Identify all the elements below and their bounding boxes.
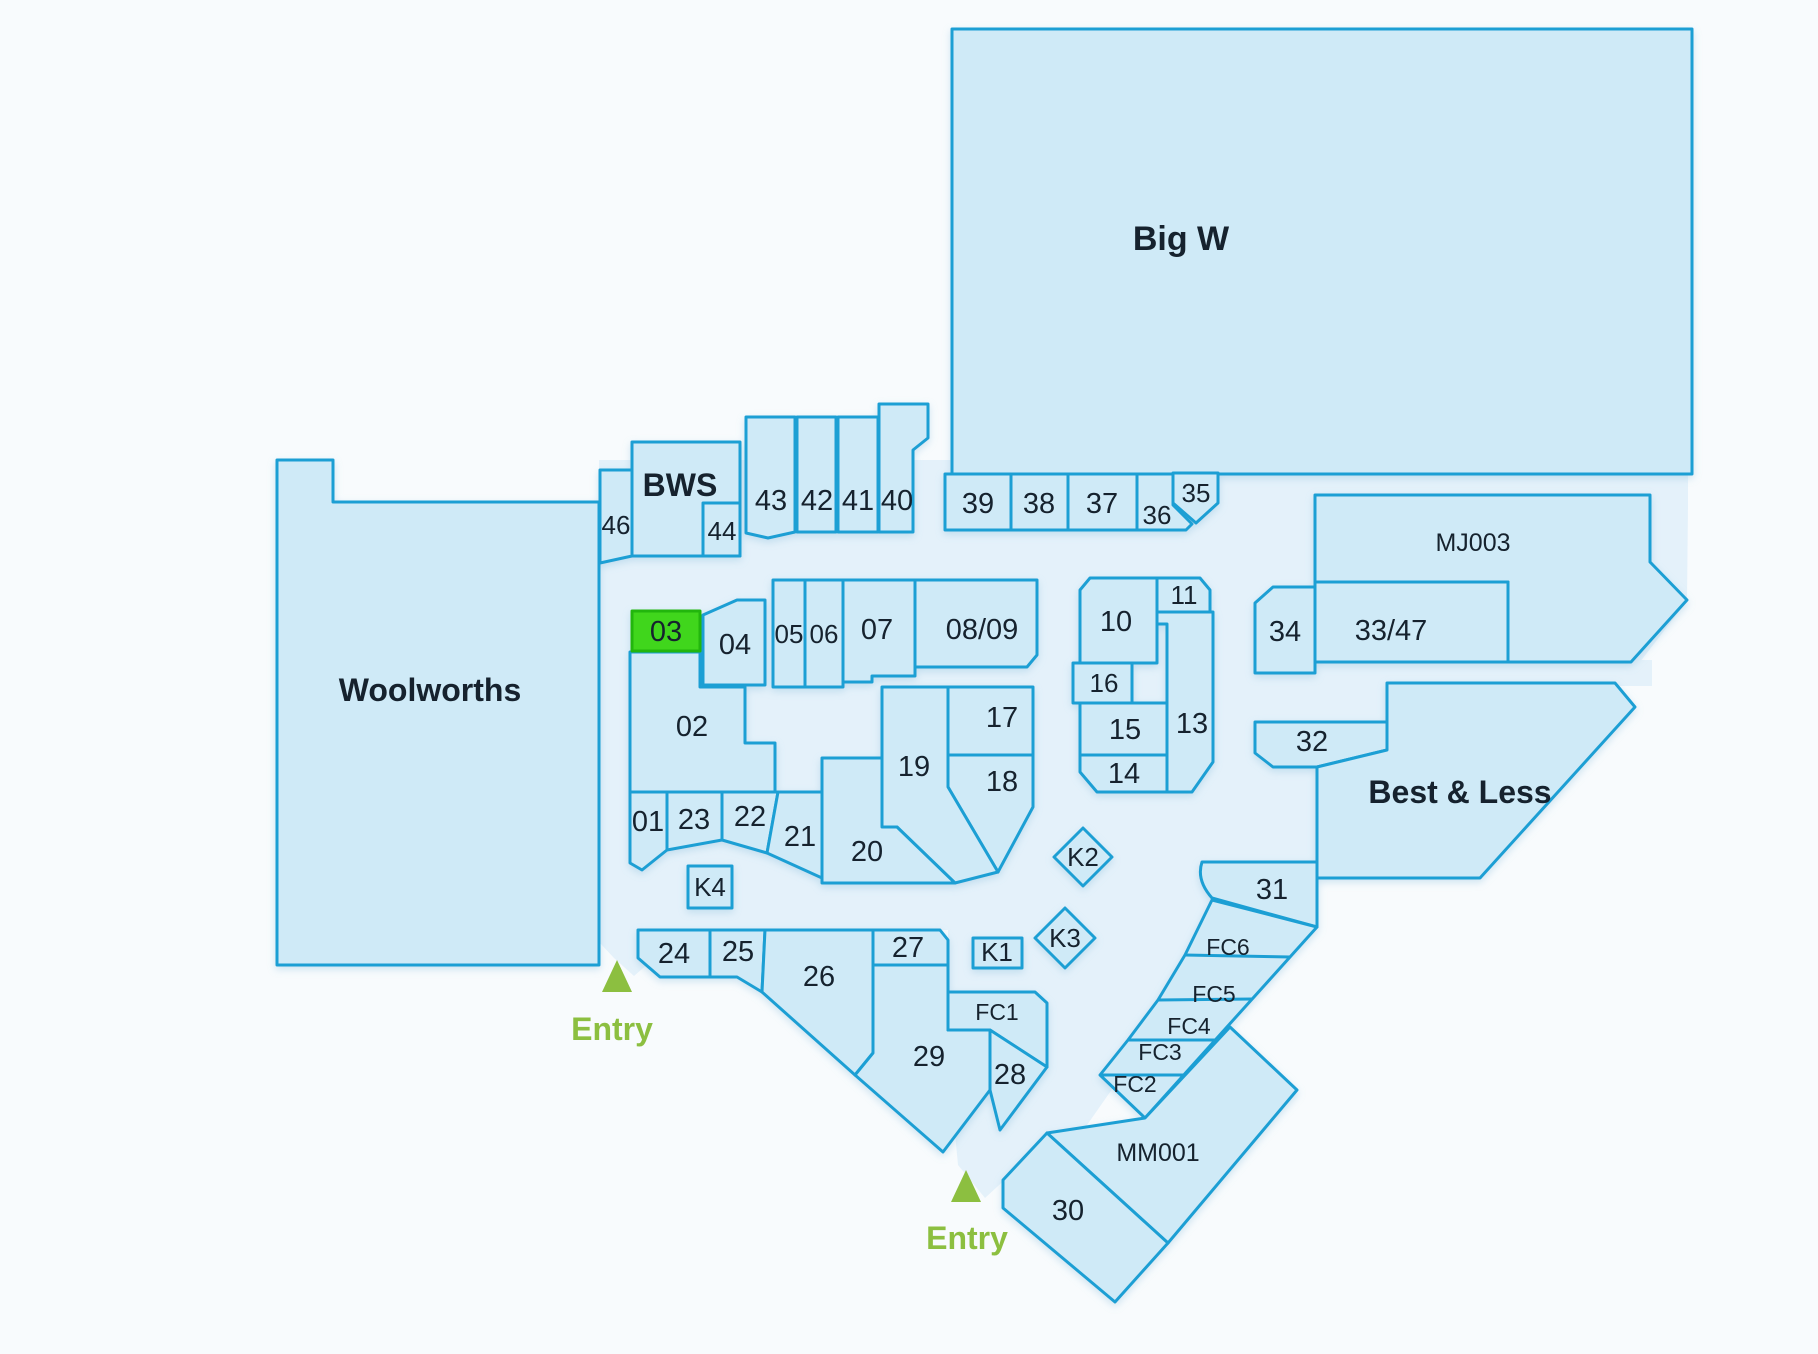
kiosk-k1-label: K1 (981, 937, 1013, 967)
shop-44-label: 44 (708, 516, 737, 546)
shop-28-label: 28 (994, 1059, 1026, 1091)
shop-20-label: 20 (851, 836, 883, 868)
shop-27-label: 27 (892, 932, 924, 964)
store-mm001-label: MM001 (1116, 1139, 1199, 1167)
store-woolworths-label: Woolworths (339, 672, 522, 708)
shop-19-label: 19 (898, 751, 930, 783)
shop-08-09-label: 08/09 (946, 614, 1019, 646)
shop-46-label: 46 (602, 510, 631, 540)
shop-33-47[interactable]: 33/47 (1315, 582, 1508, 662)
shop-39-label: 39 (962, 488, 994, 520)
foodcourt-fc1-label: FC1 (975, 999, 1018, 1025)
shop-04[interactable]: 04 (703, 600, 765, 685)
shop-34[interactable]: 34 (1255, 587, 1315, 673)
shop-37[interactable]: 37 (1068, 474, 1137, 530)
shop-27[interactable]: 27 (873, 930, 948, 965)
shop-23[interactable]: 23 (667, 792, 722, 850)
shop-26-label: 26 (803, 961, 835, 993)
shop-35-label: 35 (1182, 478, 1211, 508)
foodcourt-fc5-label: FC5 (1192, 981, 1235, 1007)
shop-22-label: 22 (734, 801, 766, 833)
shop-43-label: 43 (755, 485, 787, 517)
shop-10-label: 10 (1100, 606, 1132, 638)
shop-03-label: 03 (650, 616, 682, 648)
shop-01-label: 01 (632, 806, 664, 838)
shop-03-highlighted[interactable]: 03 (632, 611, 700, 651)
store-woolworths[interactable]: Woolworths (277, 460, 599, 965)
shop-41-label: 41 (842, 485, 874, 517)
shop-15[interactable]: 15 (1080, 703, 1167, 755)
shop-15-label: 15 (1109, 714, 1141, 746)
shop-18-label: 18 (986, 766, 1018, 798)
shop-04-label: 04 (719, 629, 751, 661)
shop-41[interactable]: 41 (838, 417, 878, 532)
shop-46[interactable]: 46 (600, 470, 632, 563)
shop-34-label: 34 (1269, 616, 1301, 648)
shop-32-label: 32 (1296, 726, 1328, 758)
shop-44[interactable]: 44 (703, 503, 740, 556)
shop-10[interactable]: 10 (1080, 578, 1157, 663)
shop-14[interactable]: 14 (1080, 755, 1167, 792)
shop-05-label: 05 (775, 619, 804, 649)
shop-42-label: 42 (801, 485, 833, 517)
shop-37-label: 37 (1086, 488, 1118, 520)
kiosk-k4[interactable]: K4 (688, 866, 732, 908)
shop-26[interactable]: 26 (762, 930, 873, 1075)
entry-marker-west: Entry (571, 960, 653, 1047)
entry-south-label: Entry (926, 1220, 1008, 1256)
shop-33-47-label: 33/47 (1355, 615, 1428, 647)
foodcourt-fc3-label: FC3 (1138, 1039, 1181, 1065)
shop-08-09[interactable]: 08/09 (915, 580, 1037, 667)
shop-11[interactable]: 11 (1157, 578, 1210, 612)
shop-42[interactable]: 42 (797, 417, 836, 532)
kiosk-k1[interactable]: K1 (973, 937, 1022, 968)
mall-floorplan: Big W Woolworths BWS 44 46 43 42 (0, 0, 1818, 1354)
shop-16[interactable]: 16 (1073, 663, 1132, 703)
shop-38[interactable]: 38 (1011, 474, 1068, 530)
entry-west-label: Entry (571, 1011, 653, 1047)
foodcourt-fc4-label: FC4 (1167, 1013, 1211, 1039)
kiosk-k3-label: K3 (1049, 923, 1081, 953)
shop-25[interactable]: 25 (710, 930, 765, 992)
shop-40-label: 40 (881, 485, 913, 517)
shop-11-label: 11 (1171, 580, 1198, 610)
shop-29-label: 29 (913, 1041, 945, 1073)
shop-17[interactable]: 17 (948, 687, 1033, 755)
mall-map-page: Big W Woolworths BWS 44 46 43 42 (0, 0, 1818, 1354)
foodcourt-fc6-label: FC6 (1206, 934, 1249, 960)
kiosk-k2-label: K2 (1067, 842, 1099, 872)
shop-39[interactable]: 39 (945, 474, 1011, 530)
shop-38-label: 38 (1023, 488, 1055, 520)
shop-31-label: 31 (1256, 874, 1288, 906)
kiosk-k4-label: K4 (694, 872, 726, 902)
shop-07[interactable]: 07 (843, 580, 915, 682)
shop-17-label: 17 (986, 702, 1018, 734)
shop-24-label: 24 (658, 938, 690, 970)
shop-23-label: 23 (678, 804, 710, 836)
shop-25-label: 25 (722, 936, 754, 968)
shop-07-label: 07 (861, 614, 893, 646)
shop-06[interactable]: 06 (805, 580, 843, 687)
shop-36-label: 36 (1143, 500, 1172, 530)
shop-02-label: 02 (676, 711, 708, 743)
store-bws-label: BWS (643, 467, 718, 503)
shop-14-label: 14 (1108, 758, 1140, 790)
store-mj003-label: MJ003 (1435, 529, 1510, 557)
shop-21-label: 21 (784, 821, 816, 853)
shop-13-label: 13 (1176, 708, 1208, 740)
shop-30-label: 30 (1052, 1195, 1084, 1227)
foodcourt-fc2-label: FC2 (1113, 1071, 1156, 1097)
store-best-and-less-label: Best & Less (1368, 774, 1551, 810)
shop-05[interactable]: 05 (773, 580, 805, 687)
shop-16-label: 16 (1090, 668, 1119, 698)
shop-06-label: 06 (810, 619, 839, 649)
shop-43[interactable]: 43 (746, 417, 795, 538)
shop-24[interactable]: 24 (638, 930, 710, 977)
store-big-w-label: Big W (1133, 220, 1230, 258)
store-big-w[interactable]: Big W (952, 29, 1692, 474)
